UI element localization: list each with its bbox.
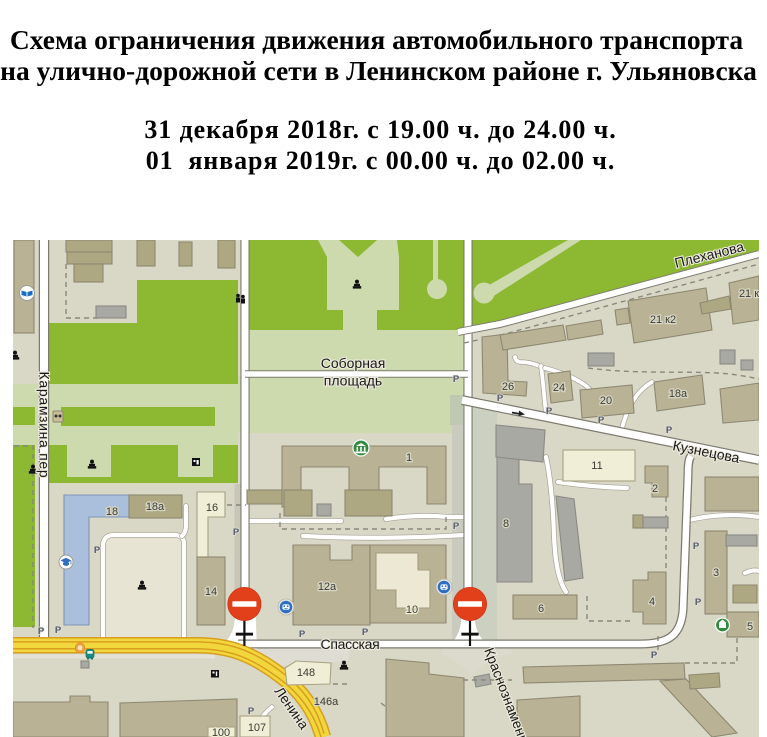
svg-text:10: 10 bbox=[406, 604, 418, 616]
svg-text:Р: Р bbox=[94, 545, 101, 556]
svg-text:Р: Р bbox=[695, 597, 702, 608]
svg-text:Соборная: Соборная bbox=[321, 355, 386, 371]
svg-text:24: 24 bbox=[553, 382, 565, 394]
svg-text:14: 14 bbox=[205, 586, 217, 598]
svg-text:18а: 18а bbox=[146, 501, 165, 513]
svg-text:Р: Р bbox=[453, 374, 460, 385]
svg-text:3: 3 bbox=[713, 567, 719, 579]
svg-text:146а: 146а bbox=[314, 696, 339, 708]
svg-text:107: 107 bbox=[248, 722, 266, 734]
svg-text:4: 4 bbox=[649, 596, 655, 608]
svg-text:2: 2 bbox=[652, 483, 658, 495]
svg-text:21 к2: 21 к2 bbox=[650, 314, 676, 326]
svg-text:Р: Р bbox=[453, 521, 460, 532]
svg-text:18: 18 bbox=[106, 506, 118, 518]
svg-text:20: 20 bbox=[600, 395, 612, 407]
svg-text:площадь: площадь bbox=[324, 373, 382, 389]
svg-text:Р: Р bbox=[233, 527, 240, 538]
svg-text:Карамзина пер: Карамзина пер bbox=[37, 372, 53, 479]
svg-text:16: 16 bbox=[206, 502, 218, 514]
svg-text:Спасская: Спасская bbox=[321, 636, 380, 652]
svg-text:100: 100 bbox=[212, 727, 230, 737]
svg-text:Р: Р bbox=[362, 627, 369, 638]
svg-text:18а: 18а bbox=[669, 388, 688, 400]
svg-text:8: 8 bbox=[503, 518, 509, 530]
svg-text:148: 148 bbox=[297, 667, 315, 679]
svg-text:6: 6 bbox=[538, 603, 544, 615]
svg-text:Р: Р bbox=[546, 406, 553, 417]
svg-text:Р: Р bbox=[299, 629, 306, 640]
svg-text:Р: Р bbox=[598, 415, 605, 426]
svg-text:Р: Р bbox=[497, 393, 504, 404]
svg-text:Р: Р bbox=[55, 625, 62, 636]
svg-text:1: 1 bbox=[406, 452, 412, 464]
svg-text:21 к: 21 к bbox=[739, 288, 759, 300]
svg-text:Р: Р bbox=[693, 541, 700, 552]
svg-text:11: 11 bbox=[591, 460, 602, 472]
svg-text:Р: Р bbox=[666, 425, 673, 436]
svg-text:Р: Р bbox=[38, 626, 45, 637]
svg-text:5: 5 bbox=[747, 621, 753, 633]
svg-text:12а: 12а bbox=[318, 581, 337, 593]
svg-text:Р: Р bbox=[651, 650, 658, 661]
svg-text:26: 26 bbox=[502, 381, 514, 393]
svg-text:Р: Р bbox=[248, 706, 255, 717]
